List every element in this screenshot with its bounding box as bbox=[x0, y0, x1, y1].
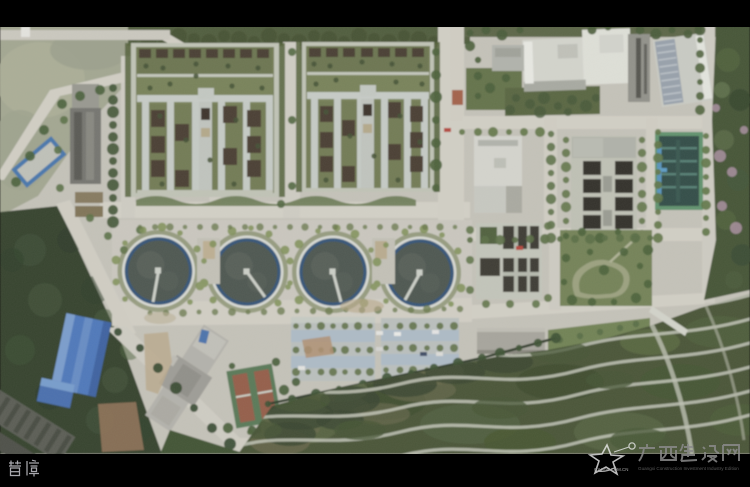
svg-text:Guangxi Construction Investmen: Guangxi Construction Investment Industry… bbox=[638, 466, 739, 471]
svg-text:GXJSW.COM.CN: GXJSW.COM.CN bbox=[594, 467, 628, 472]
